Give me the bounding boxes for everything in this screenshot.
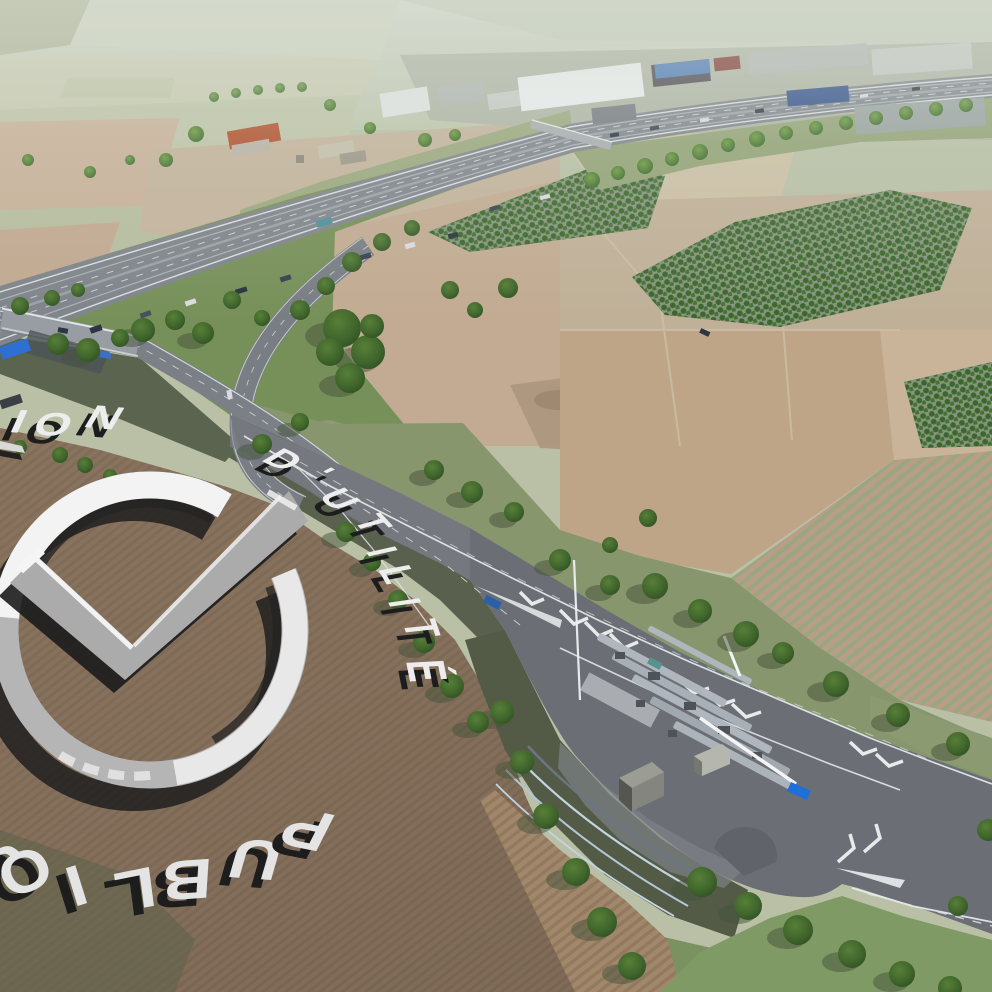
svg-text:B: B — [160, 846, 214, 913]
svg-text:É: É — [394, 658, 459, 683]
